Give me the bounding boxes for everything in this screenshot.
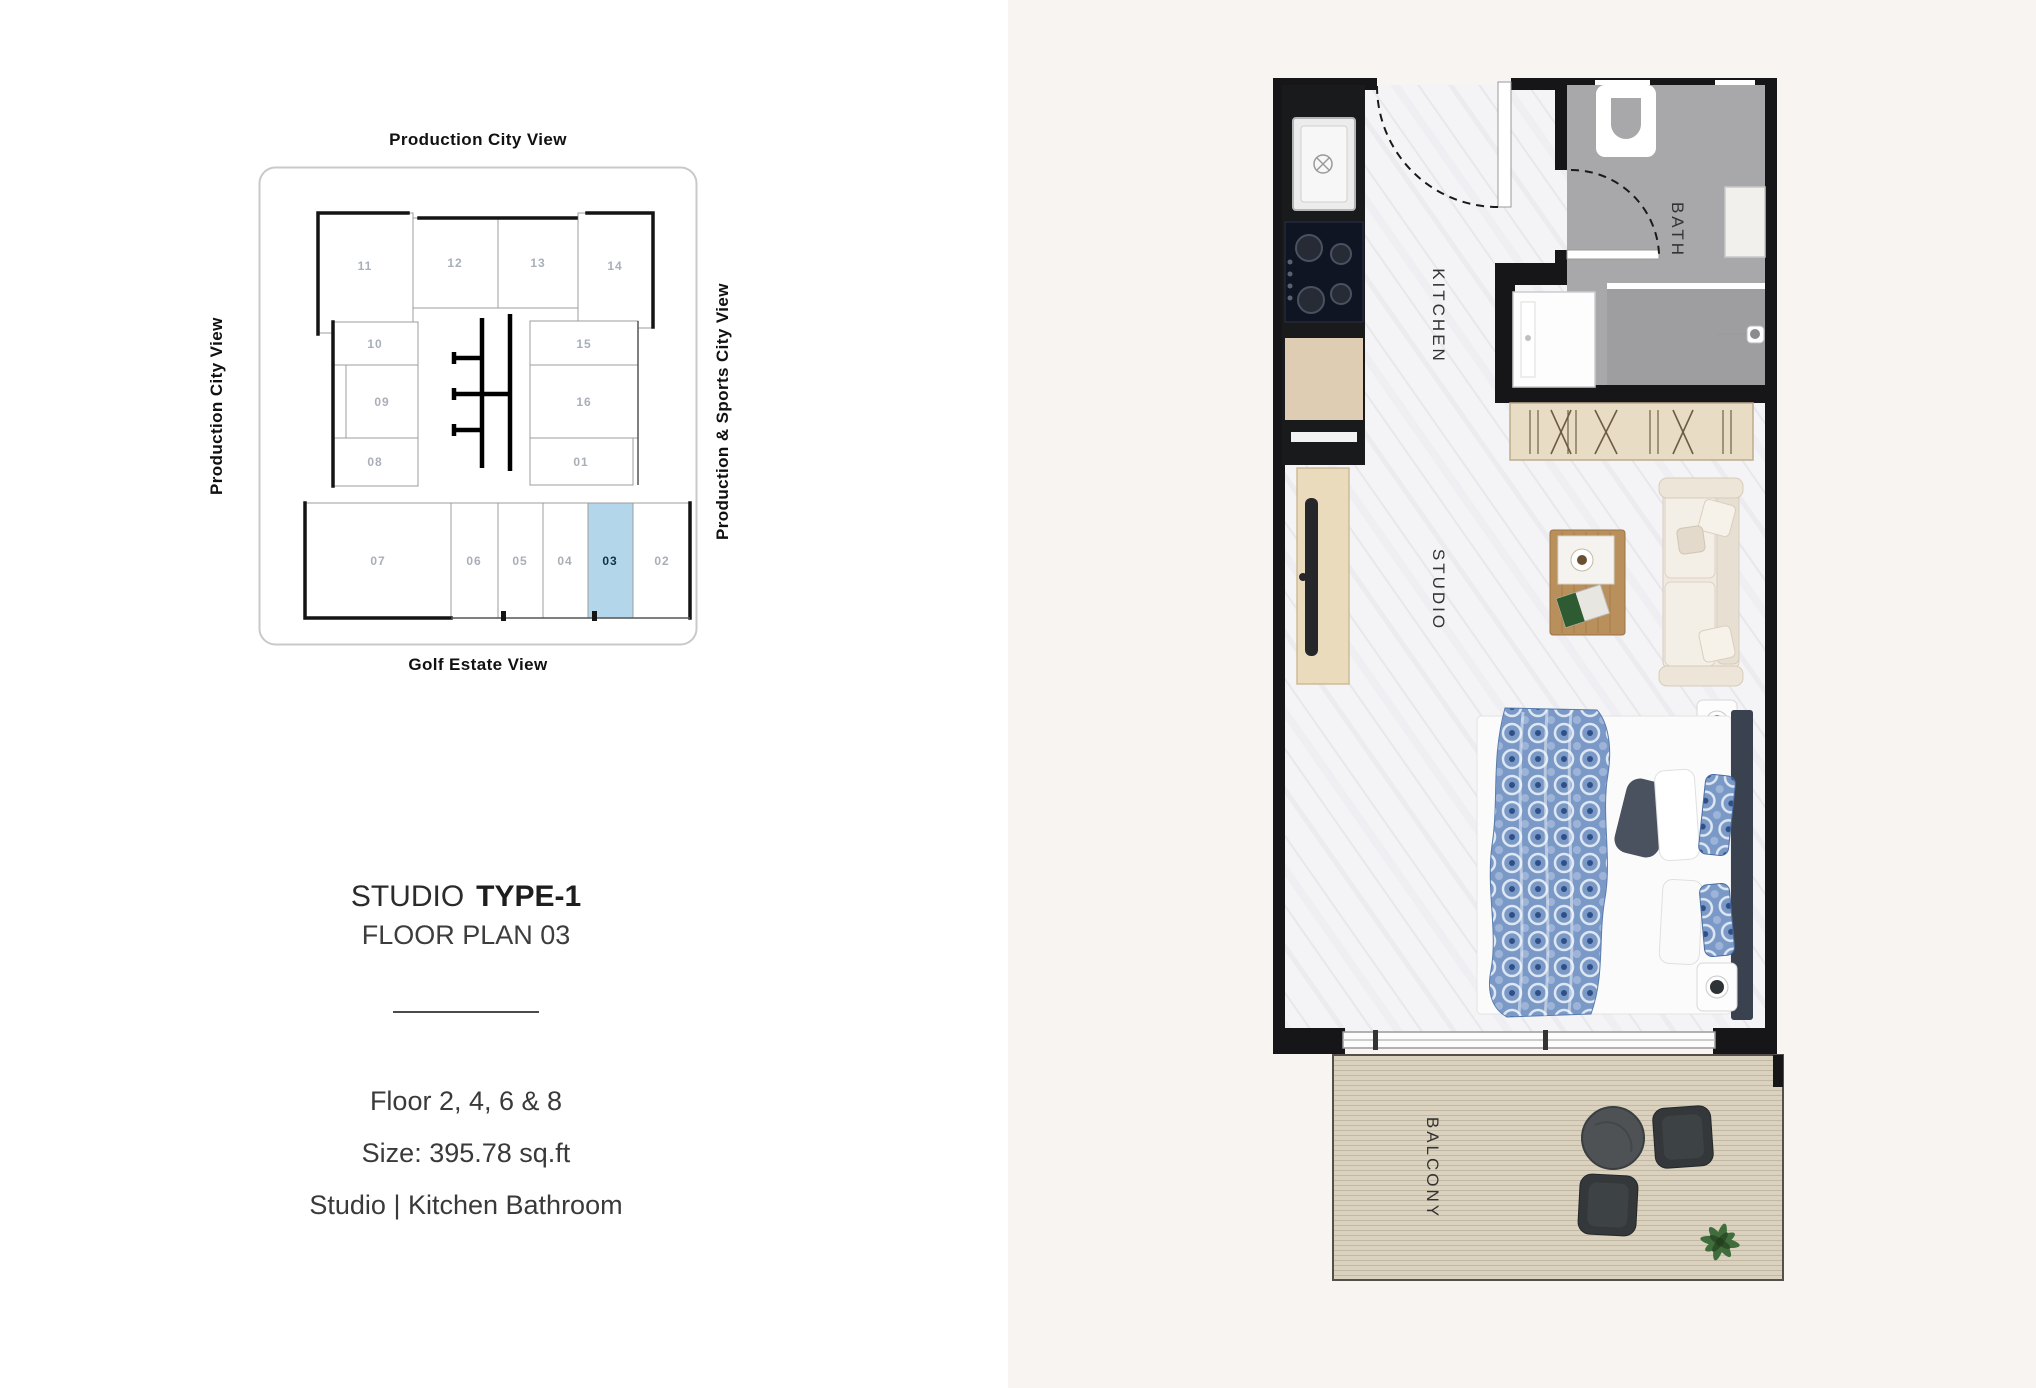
entry-door-leaf [1498,82,1511,207]
coffee-cup-icon [1577,555,1587,565]
unit-label-highlighted: 03 [602,554,617,568]
balcony-table [1582,1107,1644,1169]
stove-icon [1285,222,1363,322]
unit-label: 15 [576,337,591,351]
view-label-bottom: Golf Estate View [258,655,698,675]
size-text: Size: 395.78 sq.ft [212,1138,720,1169]
unit-label: 11 [358,259,373,273]
wall-right [1765,78,1777,1038]
unit-label: 08 [367,455,382,469]
wardrobe [1510,403,1753,460]
bath-door-leaf [1567,250,1659,259]
bed-pillow-white [1654,769,1700,862]
balcony-chair [1652,1105,1714,1169]
unit-label: 13 [530,256,545,270]
unit-label: 01 [573,455,588,469]
plan-title-regular: STUDIO [351,880,464,913]
unit-label: 12 [447,256,462,270]
tv-console [1297,468,1349,684]
unit-label: 14 [607,259,622,273]
coffee-table [1550,530,1625,635]
brochure-page: Production City View Production City Vie… [0,0,2036,1388]
bath-shelf [1725,187,1765,257]
view-label-top: Production City View [258,130,698,150]
bed-pillow-white [1659,879,1703,965]
unit-label: 16 [576,395,591,409]
wall-bottom-left [1273,1028,1345,1054]
balcony-window [1343,1030,1715,1050]
wall-bottom-right [1713,1028,1777,1054]
unit-label: 04 [557,554,572,568]
bath-wall-lower [1555,250,1567,265]
plan-subtitle: FLOOR PLAN 03 [212,920,720,951]
floors-text: Floor 2, 4, 6 & 8 [212,1086,720,1117]
kitchen-drawer [1291,432,1357,442]
kitchen-counter [1282,85,1365,465]
shower-divider [1607,283,1765,289]
configuration-text: Studio | Kitchen Bathroom [212,1190,720,1221]
divider-line [393,1011,539,1013]
kitchen-counter-wood [1285,338,1363,420]
bed-pillow-blue [1699,883,1735,957]
key-plan-diagram: 11 12 13 14 10 09 08 15 16 01 07 06 05 0… [258,166,698,646]
kitchen-label: KITCHEN [1429,268,1448,364]
vanity-wall-left [1495,265,1515,403]
unit-label: 10 [367,337,382,351]
plan-title-type: TYPE-1 [476,880,581,913]
plan-title: STUDIOTYPE-1 [212,880,720,914]
balcony-label: BALCONY [1423,1117,1442,1219]
keyplan-unit-11 [318,213,413,333]
unit-label: 05 [512,554,527,568]
bath-label: BATH [1668,202,1687,258]
kitchen-sink [1293,118,1355,210]
shower-floor [1607,289,1765,385]
studio-label: STUDIO [1429,549,1448,631]
toilet-icon [1596,85,1656,157]
floor-plan-drawing: KITCHEN BATH STUDIO BALCONY [1265,70,1795,1285]
side-table-lower [1697,963,1737,1011]
vanity-sink [1513,292,1595,387]
unit-label: 02 [654,554,669,568]
bed-throw-blanket [1489,708,1609,1017]
unit-label: 09 [374,395,389,409]
balcony-chair [1577,1174,1638,1237]
bath-wall-upper [1555,85,1567,170]
view-label-left: Production City View [200,256,234,556]
unit-label: 06 [466,554,481,568]
unit-label: 07 [370,554,385,568]
balcony-wall-stub [1773,1055,1783,1087]
view-label-right: Production & Sports City View [706,247,740,577]
sofa [1659,478,1743,686]
